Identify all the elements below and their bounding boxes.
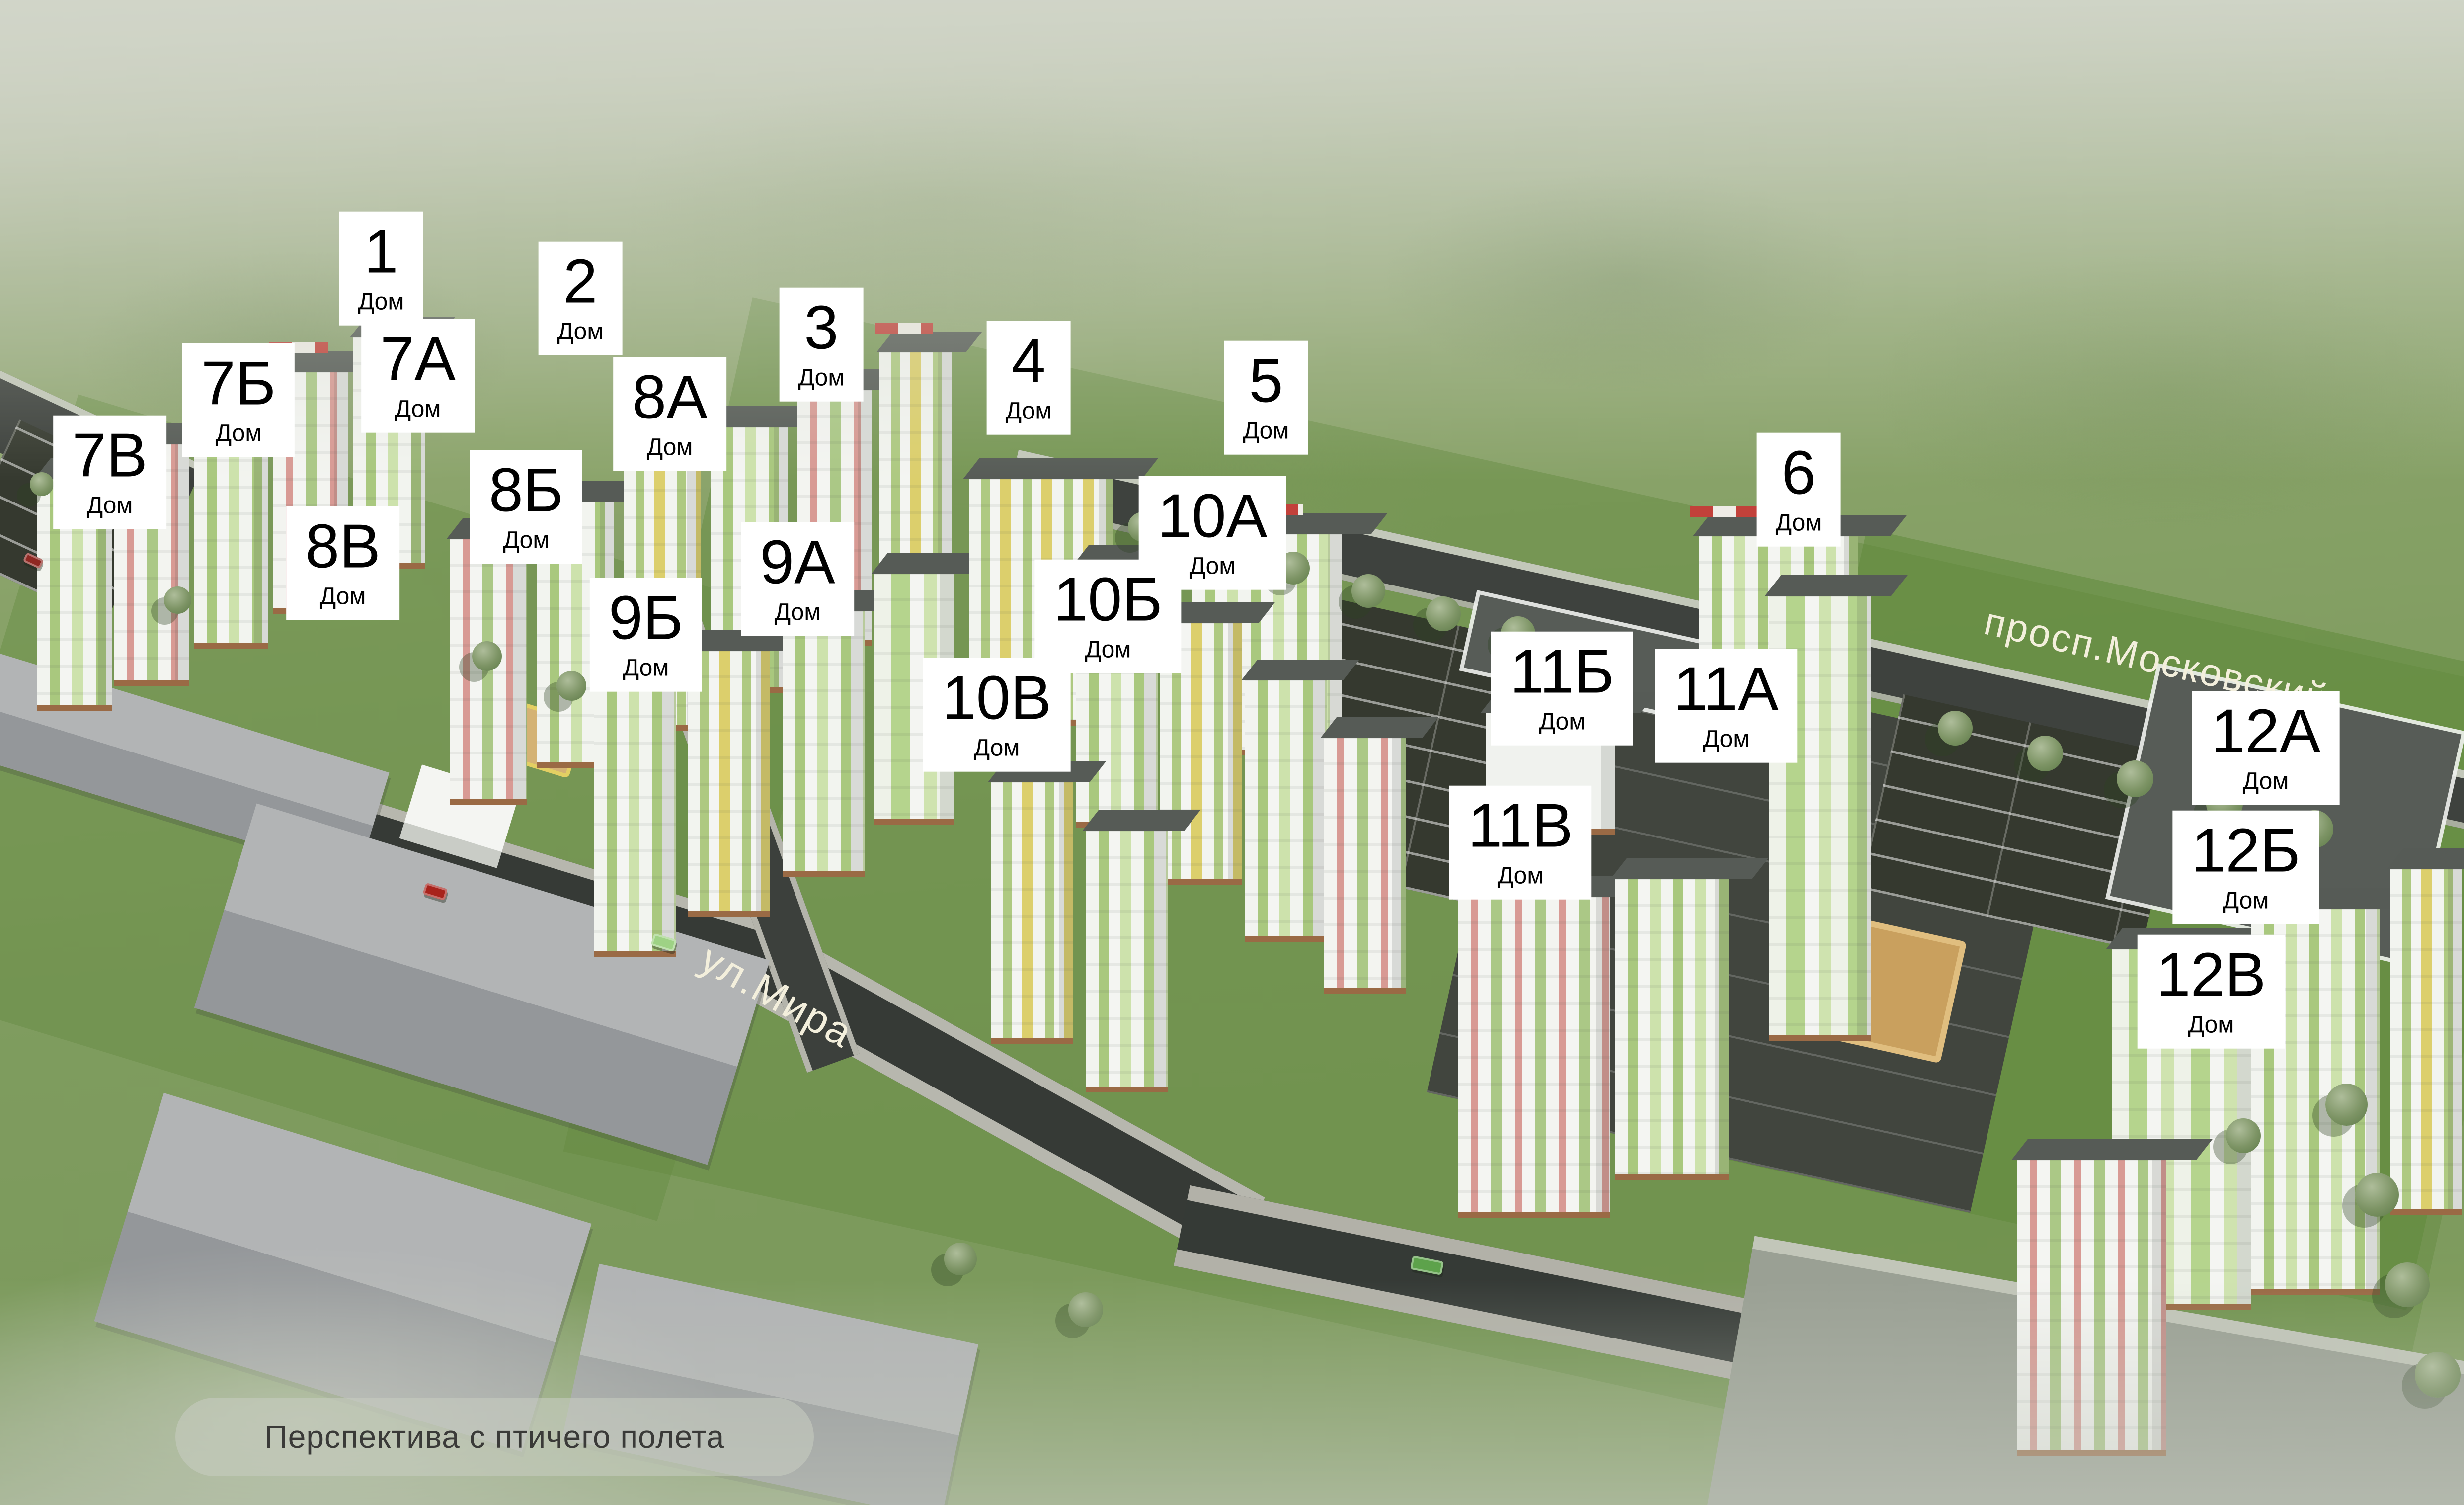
building-number: 7А [380,332,456,388]
tree-icon [2325,1084,2368,1126]
building-number: 10В [942,671,1052,727]
building-label-12В[interactable]: 12ВДом [2138,935,2285,1049]
tree-icon [556,671,586,701]
building-sublabel: Дом [1510,708,1614,735]
building-label-8Б[interactable]: 8БДом [470,450,582,564]
building-label-3[interactable]: 3Дом [780,288,864,402]
building-number: 11А [1673,662,1778,718]
building-sublabel: Дом [2156,1011,2266,1038]
building-sublabel: Дом [358,288,404,315]
tree-icon [1351,574,1385,608]
tree-icon [2355,1173,2399,1217]
building-label-11Б[interactable]: 11БДом [1491,632,1633,746]
building-number: 9Б [609,591,683,647]
building-sublabel: Дом [557,318,604,345]
view-caption: Перспектива с птичего полета [175,1398,814,1476]
building-number: 2 [557,254,604,310]
tower-10v-1 [1324,736,1406,994]
building-number: 12В [2156,948,2266,1003]
building-sublabel: Дом [632,433,708,461]
building-sublabel: Дом [1468,862,1573,889]
building-label-12Б[interactable]: 12БДом [2172,811,2319,924]
building-number: 11Б [1510,645,1614,700]
tower-8v-1 [450,537,527,805]
tower-10v-2 [991,780,1073,1044]
building-label-11В[interactable]: 11ВДом [1449,786,1591,900]
building-sublabel: Дом [942,734,1052,761]
building-number: 6 [1776,446,1822,502]
building-label-9Б[interactable]: 9БДом [590,578,702,692]
building-number: 9А [760,535,835,591]
tree-icon [2027,736,2063,771]
building-label-5[interactable]: 5Дом [1224,341,1308,455]
building-label-4[interactable]: 4Дом [987,321,1071,435]
building-label-7В[interactable]: 7ВДом [53,416,166,529]
building-number: 8Б [489,463,563,519]
building-label-10В[interactable]: 10ВДом [923,658,1071,772]
building-label-12А[interactable]: 12АДом [2192,691,2340,805]
building-sublabel: Дом [1673,725,1778,752]
building-sublabel: Дом [305,583,381,610]
building-sublabel: Дом [609,654,683,681]
building-label-8А[interactable]: 8АДом [613,357,726,471]
tree-icon [2226,1118,2261,1153]
building-label-6[interactable]: 6Дом [1757,433,1841,547]
building-number: 1 [358,225,404,280]
building-label-7Б[interactable]: 7БДом [182,343,295,457]
building-sublabel: Дом [380,395,456,422]
tower-9b-1 [594,688,676,957]
building-label-10Б[interactable]: 10БДом [1034,560,1181,673]
building-number: 11В [1468,799,1573,854]
tower-12-east [2390,867,2462,1215]
building-number: 3 [798,301,845,356]
building-sublabel: Дом [2211,767,2321,795]
building-number: 10А [1158,489,1268,545]
building-label-9А[interactable]: 9АДом [741,522,854,636]
tower-10b-2 [1245,678,1327,942]
building-sublabel: Дом [760,598,835,626]
building-label-7А[interactable]: 7АДом [361,319,475,433]
building-sublabel: Дом [798,364,845,391]
building-number: 12А [2211,704,2321,760]
tree-icon [1938,711,1973,746]
building-sublabel: Дом [72,492,148,519]
site-plan-stage: ул.Мира просп.Московский Перспектива с п… [0,0,2464,1505]
tree-icon [164,586,191,614]
building-number: 8А [632,370,708,426]
tower-11v-1 [1458,895,1610,1218]
building-sublabel: Дом [1006,397,1052,424]
tree-icon [472,641,502,671]
tree-icon [1426,596,1461,631]
tree-icon [2117,760,2153,797]
building-sublabel: Дом [489,526,563,554]
tower-11v-2 [1615,877,1729,1180]
tower-10v-3 [1086,829,1168,1092]
building-number: 5 [1243,354,1289,410]
building-label-8В[interactable]: 8ВДом [286,506,399,620]
tree-icon [944,1243,977,1275]
building-sublabel: Дом [1243,417,1289,444]
building-label-1[interactable]: 1Дом [339,212,423,326]
building-number: 7Б [201,356,276,412]
building-number: 12Б [2191,824,2300,879]
building-label-11А[interactable]: 11АДом [1655,649,1797,763]
building-sublabel: Дом [1776,509,1822,536]
building-sublabel: Дом [2191,887,2300,914]
building-label-2[interactable]: 2Дом [539,242,623,355]
building-sublabel: Дом [201,419,276,447]
building-number: 10Б [1053,573,1162,628]
building-number: 4 [1006,334,1052,390]
building-number: 8В [305,519,381,575]
building-number: 7В [72,428,148,484]
tower-9a-1 [783,609,865,877]
